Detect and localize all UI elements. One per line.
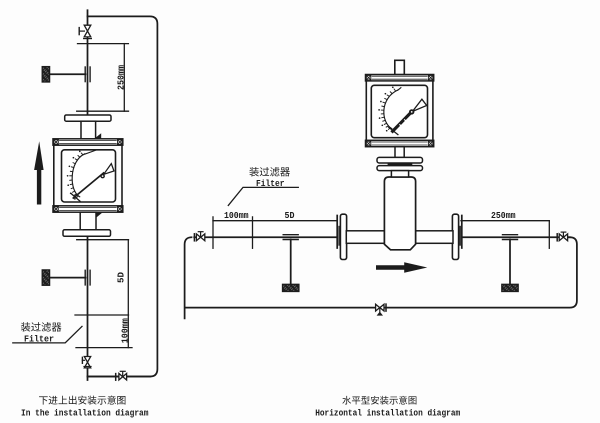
- svg-text:5D: 5D: [285, 210, 295, 221]
- svg-text:Horizontal installation diagra: Horizontal installation diagram: [315, 407, 460, 418]
- svg-text:250mm: 250mm: [491, 210, 516, 221]
- svg-text:5D: 5D: [115, 272, 126, 283]
- svg-text:100mm: 100mm: [224, 210, 249, 221]
- svg-text:In the installation diagram: In the installation diagram: [21, 408, 149, 419]
- svg-text:250mm: 250mm: [115, 65, 126, 90]
- svg-text:100mm: 100mm: [119, 318, 130, 343]
